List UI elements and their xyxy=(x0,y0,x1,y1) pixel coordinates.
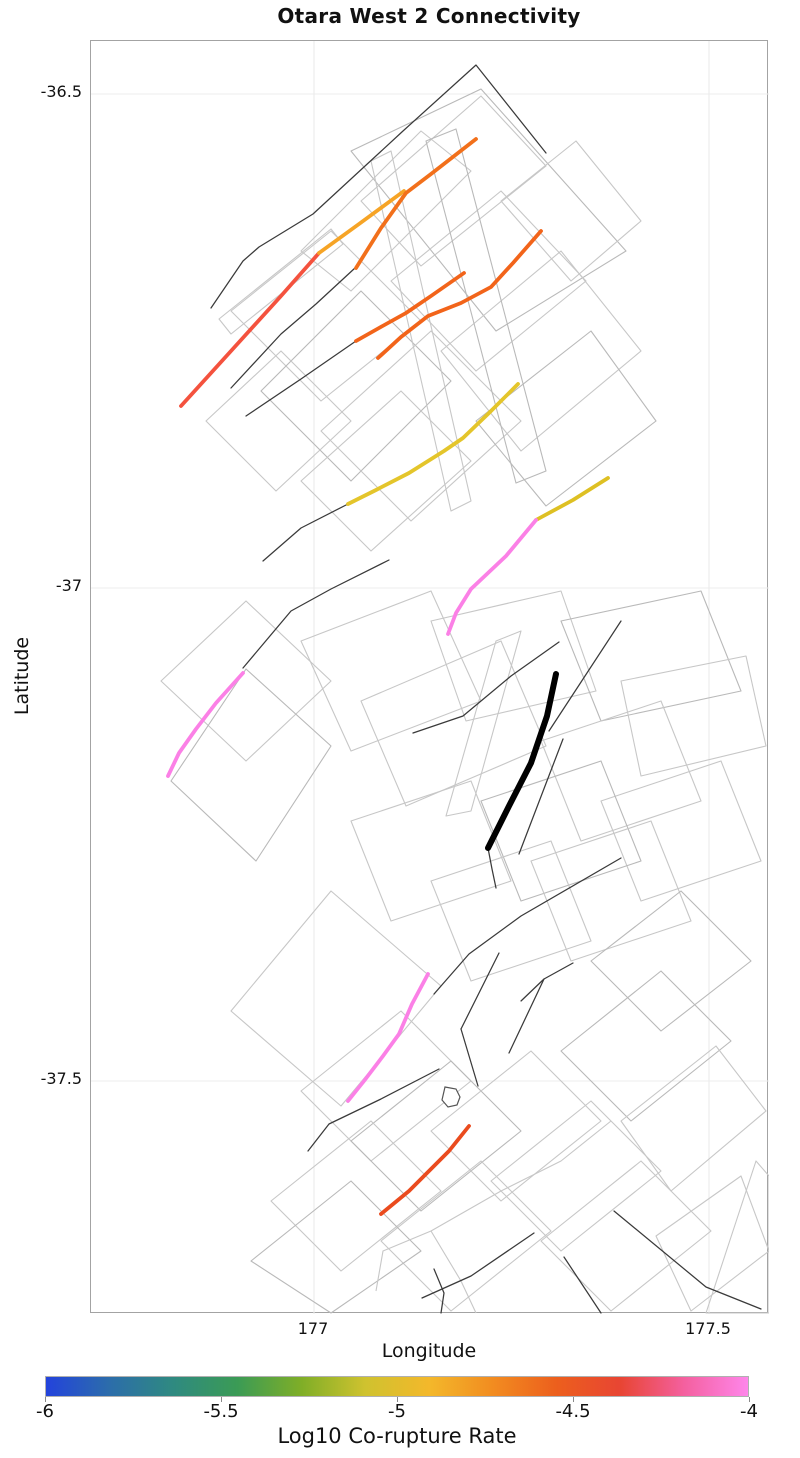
fault-surface-polygon xyxy=(271,1121,441,1271)
fault-surface-polygon xyxy=(601,761,761,901)
fault-surface-polygon xyxy=(561,591,741,721)
fault-surface-outline xyxy=(376,1121,611,1291)
target-fault-segment xyxy=(488,674,556,848)
fault-surface-polygon xyxy=(426,129,546,483)
fault-surface-polygon xyxy=(531,821,691,961)
islet-outline xyxy=(442,1087,460,1107)
plot-area xyxy=(90,40,768,1313)
fault-surface-polygon xyxy=(621,656,766,776)
fault-surface-polygon xyxy=(171,669,331,861)
fault-surface-outline xyxy=(431,1231,476,1313)
fault-trace xyxy=(461,953,499,1029)
corupture-segment-central-pink-west xyxy=(168,673,243,776)
fault-surface-polygon xyxy=(301,1011,471,1161)
fault-trace xyxy=(246,341,356,416)
fault-surface-polygon xyxy=(591,891,751,1031)
fault-trace xyxy=(461,1029,478,1086)
fault-trace xyxy=(564,1257,601,1313)
map-canvas xyxy=(91,41,769,1314)
fault-surface-polygon xyxy=(481,761,641,901)
fault-surface-polygon xyxy=(561,971,731,1121)
fault-surface-polygon xyxy=(301,391,471,551)
fault-surface-polygon xyxy=(441,251,641,451)
x-tick-label: 177 xyxy=(298,1319,329,1338)
corupture-segment-south-pink xyxy=(348,974,428,1101)
colorbar-tick-label: -6 xyxy=(36,1401,54,1422)
fault-surface-polygon xyxy=(301,131,471,291)
fault-trace xyxy=(263,504,348,561)
colorbar-tick-label: -5 xyxy=(388,1401,406,1422)
y-tick-label: -36.5 xyxy=(41,82,82,101)
colorbar-tick-label: -5.5 xyxy=(203,1401,238,1422)
fault-surface-polygon xyxy=(231,891,441,1106)
fault-surface-polygon xyxy=(656,1176,769,1311)
fault-trace xyxy=(413,642,559,733)
fault-trace xyxy=(519,739,563,854)
fault-surface-polygon xyxy=(321,331,521,521)
colorbar-gradient xyxy=(45,1376,749,1397)
x-tick-label: 177.5 xyxy=(685,1319,731,1338)
corupture-segment-central-pink-east xyxy=(448,520,536,634)
y-tick-label: -37 xyxy=(56,576,82,595)
fault-surface-polygon xyxy=(476,331,656,506)
corupture-segment-nw-red xyxy=(181,253,319,406)
corupture-segment-central-yellow-long xyxy=(348,384,518,504)
fault-trace xyxy=(614,1211,761,1309)
fault-surface-polygon xyxy=(206,351,351,491)
fault-trace xyxy=(521,963,573,1001)
fault-surface-polygon xyxy=(361,641,546,806)
fault-surface-polygon xyxy=(431,841,591,981)
corupture-segment-north-orange-low xyxy=(378,231,541,358)
y-axis-label: Latitude xyxy=(11,637,33,715)
fault-trace xyxy=(434,858,621,994)
corupture-segment-south-orange-red xyxy=(381,1126,469,1214)
y-tick-label: -37.5 xyxy=(41,1069,82,1088)
figure: Otara West 2 Connectivity -36.5-37-37.51… xyxy=(0,0,800,1458)
fault-surface-polygon xyxy=(446,631,521,816)
fault-trace xyxy=(211,65,546,308)
fault-surface-polygon xyxy=(351,781,511,921)
fault-surface-polygon xyxy=(541,1161,711,1311)
fault-trace xyxy=(488,848,496,888)
fault-surface-polygon xyxy=(501,141,641,281)
fault-trace xyxy=(509,979,544,1053)
corupture-segment-central-yellow-short xyxy=(536,478,608,520)
colorbar-label: Log10 Co-rupture Rate xyxy=(45,1424,749,1448)
fault-surface-polygon xyxy=(541,701,701,841)
fault-trace xyxy=(243,560,389,668)
colorbar-tick-label: -4 xyxy=(740,1401,758,1422)
fault-trace xyxy=(422,1233,534,1298)
fault-surface-polygon xyxy=(621,1046,766,1191)
colorbar-tick-label: -4.5 xyxy=(555,1401,590,1422)
fault-surface-polygon xyxy=(161,601,331,761)
fault-trace xyxy=(549,621,621,731)
chart-title: Otara West 2 Connectivity xyxy=(90,4,768,28)
x-axis-label: Longitude xyxy=(90,1340,768,1362)
